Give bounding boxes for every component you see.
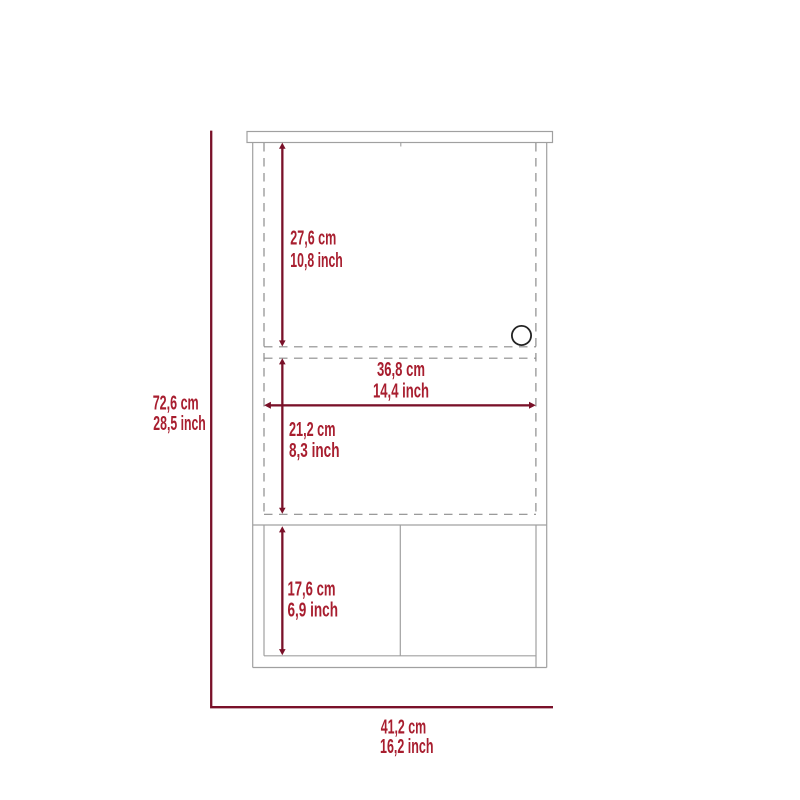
svg-text:14,4 inch: 14,4 inch: [373, 380, 429, 402]
svg-text:6,9 inch: 6,9 inch: [288, 600, 339, 622]
svg-text:17,6 cm: 17,6 cm: [288, 578, 336, 600]
svg-text:8,3 inch: 8,3 inch: [289, 440, 340, 462]
svg-text:21,2 cm: 21,2 cm: [289, 419, 336, 441]
svg-text:28,5 inch: 28,5 inch: [153, 413, 206, 435]
svg-text:16,2 inch: 16,2 inch: [380, 736, 434, 758]
svg-text:72,6 cm: 72,6 cm: [153, 393, 199, 415]
svg-text:36,8 cm: 36,8 cm: [377, 359, 425, 381]
svg-text:10,8 inch: 10,8 inch: [290, 250, 343, 272]
svg-text:27,6 cm: 27,6 cm: [290, 228, 336, 250]
